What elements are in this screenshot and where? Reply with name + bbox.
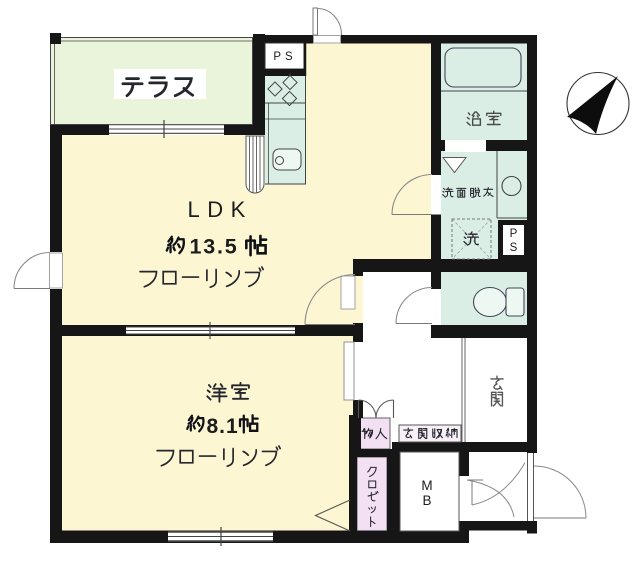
svg-text:13.5: 13.5	[190, 235, 239, 259]
svg-text:M: M	[421, 478, 432, 493]
svg-text:LDK: LDK	[188, 197, 253, 222]
svg-text:8.1: 8.1	[207, 415, 239, 438]
svg-text:S: S	[510, 242, 518, 254]
svg-text:PS: PS	[273, 51, 296, 63]
svg-text:B: B	[422, 493, 431, 508]
svg-text:P: P	[510, 228, 518, 240]
